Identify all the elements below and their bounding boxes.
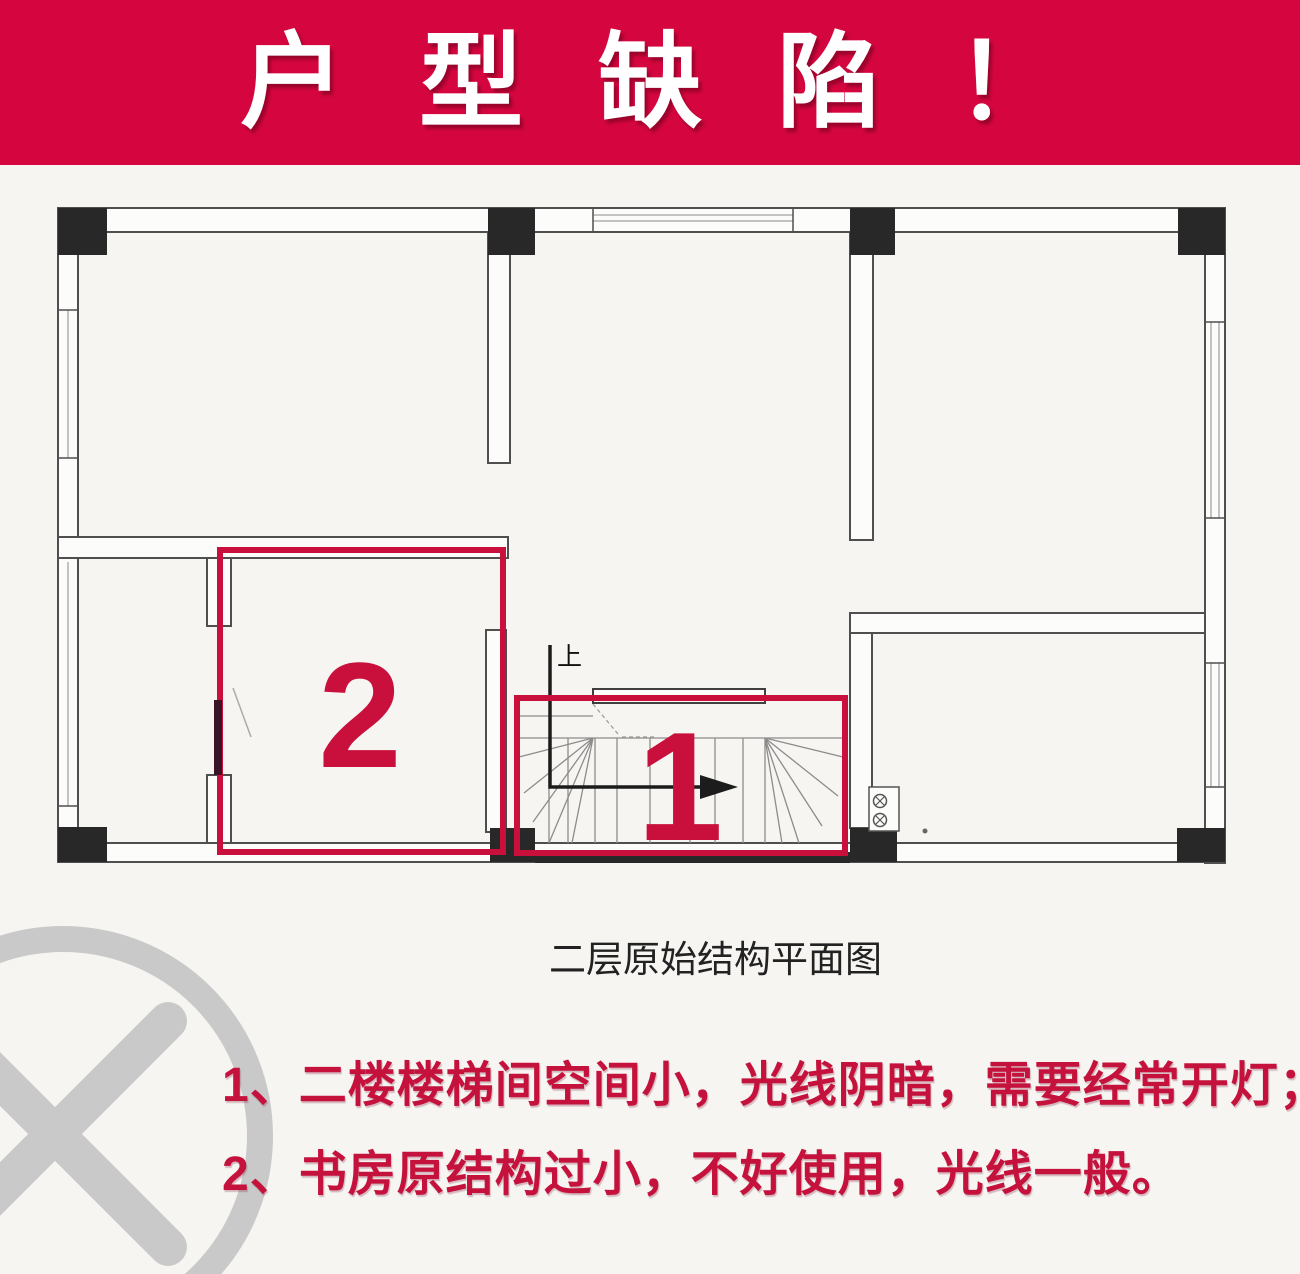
stairs-up-label: 上 <box>557 645 582 670</box>
issue-line-2: 2、书房原结构过小，不好使用，光线一般。 <box>222 1147 1181 1202</box>
sink-fixture <box>869 787 928 834</box>
top-banner: 户型缺陷！ <box>0 0 1300 165</box>
staircase-number-label: 1 <box>600 709 760 864</box>
study-room-number-label: 2 <box>280 640 440 790</box>
issue-line-1: 1、二楼楼梯间空间小，光线阴暗，需要经常开灯； <box>222 1058 1300 1113</box>
door-swing-line <box>233 688 251 737</box>
watermark-cross-icon <box>0 939 260 1274</box>
infographic-page: 户型缺陷！ 2 1 上 二层原始结构平面图 1、二楼楼梯间空间小，光线阴暗，需要… <box>0 0 1300 1274</box>
plan-caption: 二层原始结构平面图 <box>549 941 882 982</box>
banner-title: 户型缺陷！ <box>165 31 1134 135</box>
door-leaf <box>214 700 222 775</box>
